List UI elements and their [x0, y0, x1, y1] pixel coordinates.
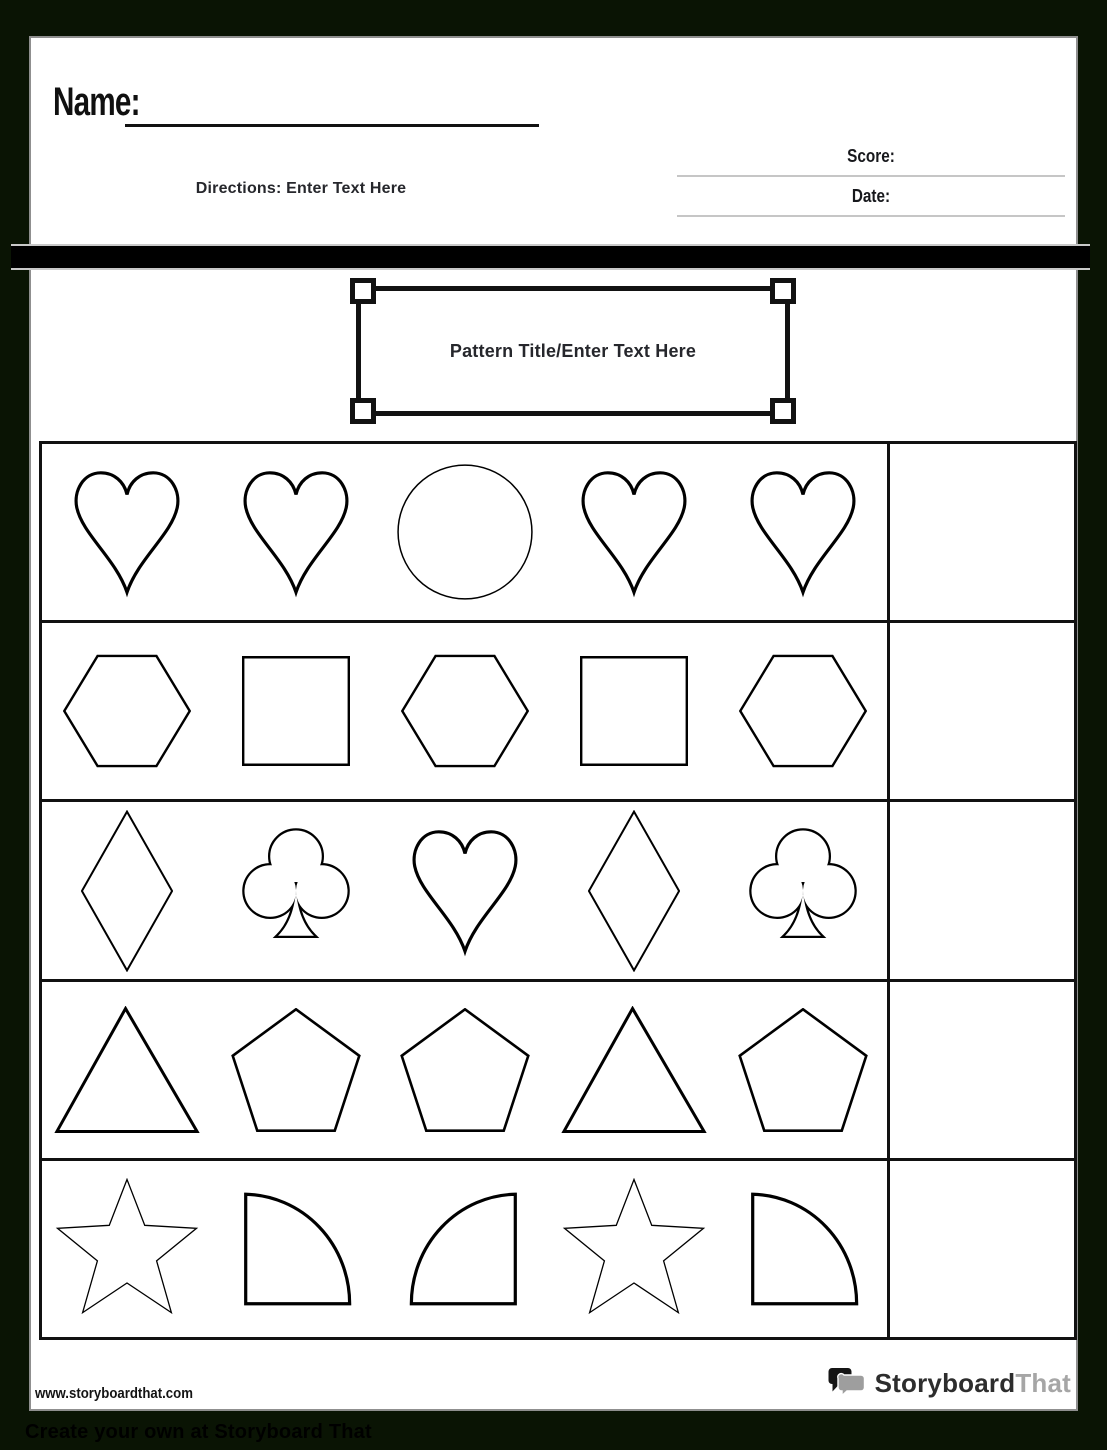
pattern-title-text[interactable]: Pattern Title/Enter Text Here	[450, 341, 696, 362]
pattern-shapes-cell	[42, 623, 887, 799]
heart-shape	[718, 465, 887, 599]
date-label: Date:	[706, 186, 1036, 207]
footer-url: www.storyboardthat.com	[35, 1385, 193, 1402]
logo-text-secondary: That	[1015, 1368, 1071, 1398]
score-fill-line	[677, 175, 1065, 177]
pattern-shapes-cell	[42, 982, 887, 1158]
club-shape	[718, 828, 887, 954]
pattern-row	[42, 979, 1074, 1158]
divider-bar	[11, 244, 1090, 270]
storyboardthat-logo: StoryboardThat	[828, 1367, 1071, 1400]
pattern-row	[42, 620, 1074, 799]
logo-text-primary: Storyboard	[875, 1368, 1016, 1398]
corner-handle-icon	[770, 398, 796, 424]
speech-bubbles-icon	[828, 1367, 868, 1400]
answer-cell[interactable]	[887, 982, 1074, 1158]
pattern-table	[39, 441, 1077, 1340]
bottom-band-text: Create your own at Storyboard That	[25, 1421, 372, 1444]
hexagon-shape	[380, 654, 549, 768]
heart-shape	[549, 465, 718, 599]
pattern-row	[42, 1158, 1074, 1337]
square-shape	[211, 655, 380, 767]
date-fill-line	[677, 215, 1065, 217]
triangle-shape	[42, 1006, 211, 1134]
pattern-row	[42, 799, 1074, 978]
star-shape	[549, 1178, 718, 1320]
heart-shape	[42, 465, 211, 599]
worksheet-page: Name: Directions: Enter Text Here Score:…	[29, 36, 1078, 1411]
corner-handle-icon	[350, 398, 376, 424]
pattern-title-box[interactable]: Pattern Title/Enter Text Here	[356, 286, 790, 416]
club-shape	[211, 828, 380, 954]
circle-shape	[380, 463, 549, 601]
name-fill-line	[125, 124, 539, 127]
quarter-circle-left-shape	[718, 1192, 887, 1306]
pentagon-shape	[718, 1008, 887, 1132]
directions-text[interactable]: Directions: Enter Text Here	[171, 180, 431, 198]
quarter-circle-left-shape	[211, 1192, 380, 1306]
pattern-shapes-cell	[42, 1161, 887, 1337]
square-shape	[549, 655, 718, 767]
heart-shape	[380, 824, 549, 958]
star-shape	[42, 1178, 211, 1320]
answer-cell[interactable]	[887, 623, 1074, 799]
corner-handle-icon	[350, 278, 376, 304]
hexagon-shape	[718, 654, 887, 768]
hexagon-shape	[42, 654, 211, 768]
diamond-shape	[42, 810, 211, 972]
pattern-row	[42, 444, 1074, 620]
pattern-shapes-cell	[42, 802, 887, 978]
diamond-shape	[549, 810, 718, 972]
answer-cell[interactable]	[887, 802, 1074, 978]
name-label: Name:	[53, 80, 140, 125]
pentagon-shape	[380, 1008, 549, 1132]
score-label: Score:	[706, 146, 1036, 167]
triangle-shape	[549, 1006, 718, 1134]
corner-handle-icon	[770, 278, 796, 304]
quarter-circle-right-shape	[380, 1192, 549, 1306]
pattern-shapes-cell	[42, 444, 887, 620]
heart-shape	[211, 465, 380, 599]
pentagon-shape	[211, 1008, 380, 1132]
answer-cell[interactable]	[887, 444, 1074, 620]
answer-cell[interactable]	[887, 1161, 1074, 1337]
